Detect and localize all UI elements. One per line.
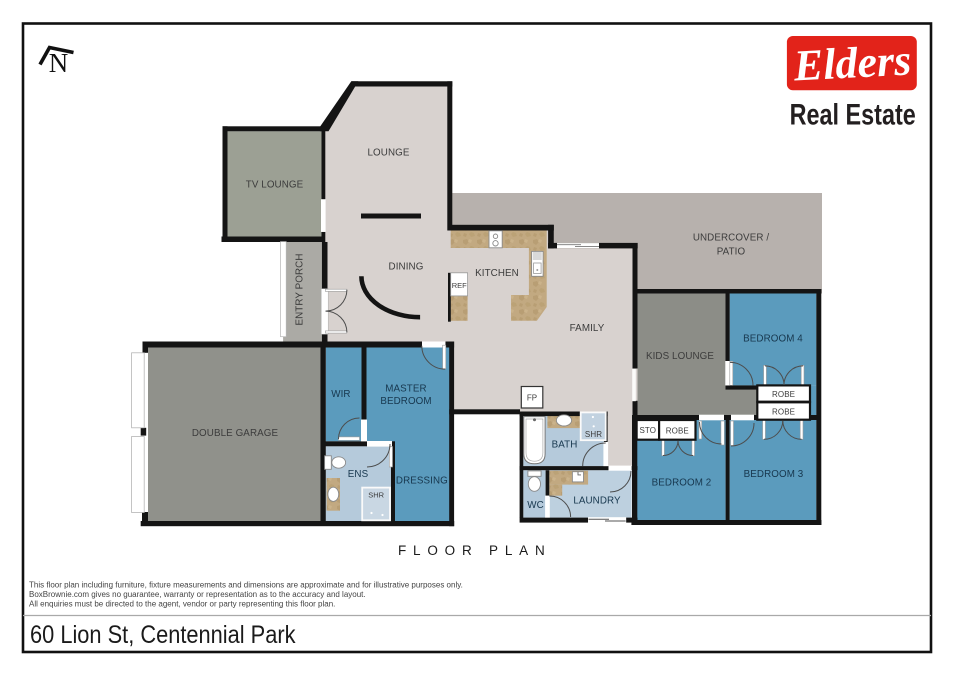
svg-text:ROBE: ROBE xyxy=(772,407,795,416)
svg-text:DRESSING: DRESSING xyxy=(396,476,448,487)
svg-text:ROBE: ROBE xyxy=(772,390,795,399)
svg-text:STO: STO xyxy=(639,426,656,435)
svg-text:FP: FP xyxy=(527,393,537,402)
svg-text:BoxBrownie.com gives no guaran: BoxBrownie.com gives no guarantee, warra… xyxy=(29,590,366,599)
svg-text:BEDROOM 4: BEDROOM 4 xyxy=(743,334,803,345)
svg-text:Elders: Elders xyxy=(792,35,913,90)
svg-text:WC: WC xyxy=(527,500,544,511)
svg-text:ENTRY PORCH: ENTRY PORCH xyxy=(295,253,306,325)
svg-text:PATIO: PATIO xyxy=(717,247,746,258)
svg-text:ROBE: ROBE xyxy=(666,426,689,435)
svg-text:SHR: SHR xyxy=(368,491,384,500)
svg-text:SHR: SHR xyxy=(585,430,602,439)
svg-text:This floor plan including furn: This floor plan including furniture, fix… xyxy=(29,581,463,590)
svg-text:LAUNDRY: LAUNDRY xyxy=(573,496,621,507)
svg-text:FAMILY: FAMILY xyxy=(570,323,605,334)
svg-text:LOUNGE: LOUNGE xyxy=(368,148,410,159)
svg-text:KITCHEN: KITCHEN xyxy=(475,268,519,279)
svg-text:UNDERCOVER /: UNDERCOVER / xyxy=(693,233,769,244)
svg-text:MASTER: MASTER xyxy=(385,384,426,395)
svg-text:60 Lion St, Centennial Park: 60 Lion St, Centennial Park xyxy=(30,621,296,649)
svg-text:WIR: WIR xyxy=(331,389,350,400)
svg-text:DOUBLE GARAGE: DOUBLE GARAGE xyxy=(192,428,279,439)
svg-text:REF: REF xyxy=(452,281,467,290)
svg-text:FLOOR PLAN: FLOOR PLAN xyxy=(398,543,552,558)
svg-text:N: N xyxy=(49,48,69,78)
svg-text:KIDS LOUNGE: KIDS LOUNGE xyxy=(646,351,714,362)
svg-text:Real Estate: Real Estate xyxy=(790,98,916,131)
svg-text:BATH: BATH xyxy=(552,440,578,451)
svg-text:TV LOUNGE: TV LOUNGE xyxy=(246,180,304,191)
svg-text:DINING: DINING xyxy=(389,262,424,273)
svg-text:BEDROOM 3: BEDROOM 3 xyxy=(744,469,804,480)
svg-text:BEDROOM 2: BEDROOM 2 xyxy=(652,478,712,489)
svg-text:All enquiries must be directed: All enquiries must be directed to the ag… xyxy=(29,600,335,609)
svg-text:BEDROOM: BEDROOM xyxy=(380,396,431,407)
svg-text:ENS: ENS xyxy=(348,469,369,480)
